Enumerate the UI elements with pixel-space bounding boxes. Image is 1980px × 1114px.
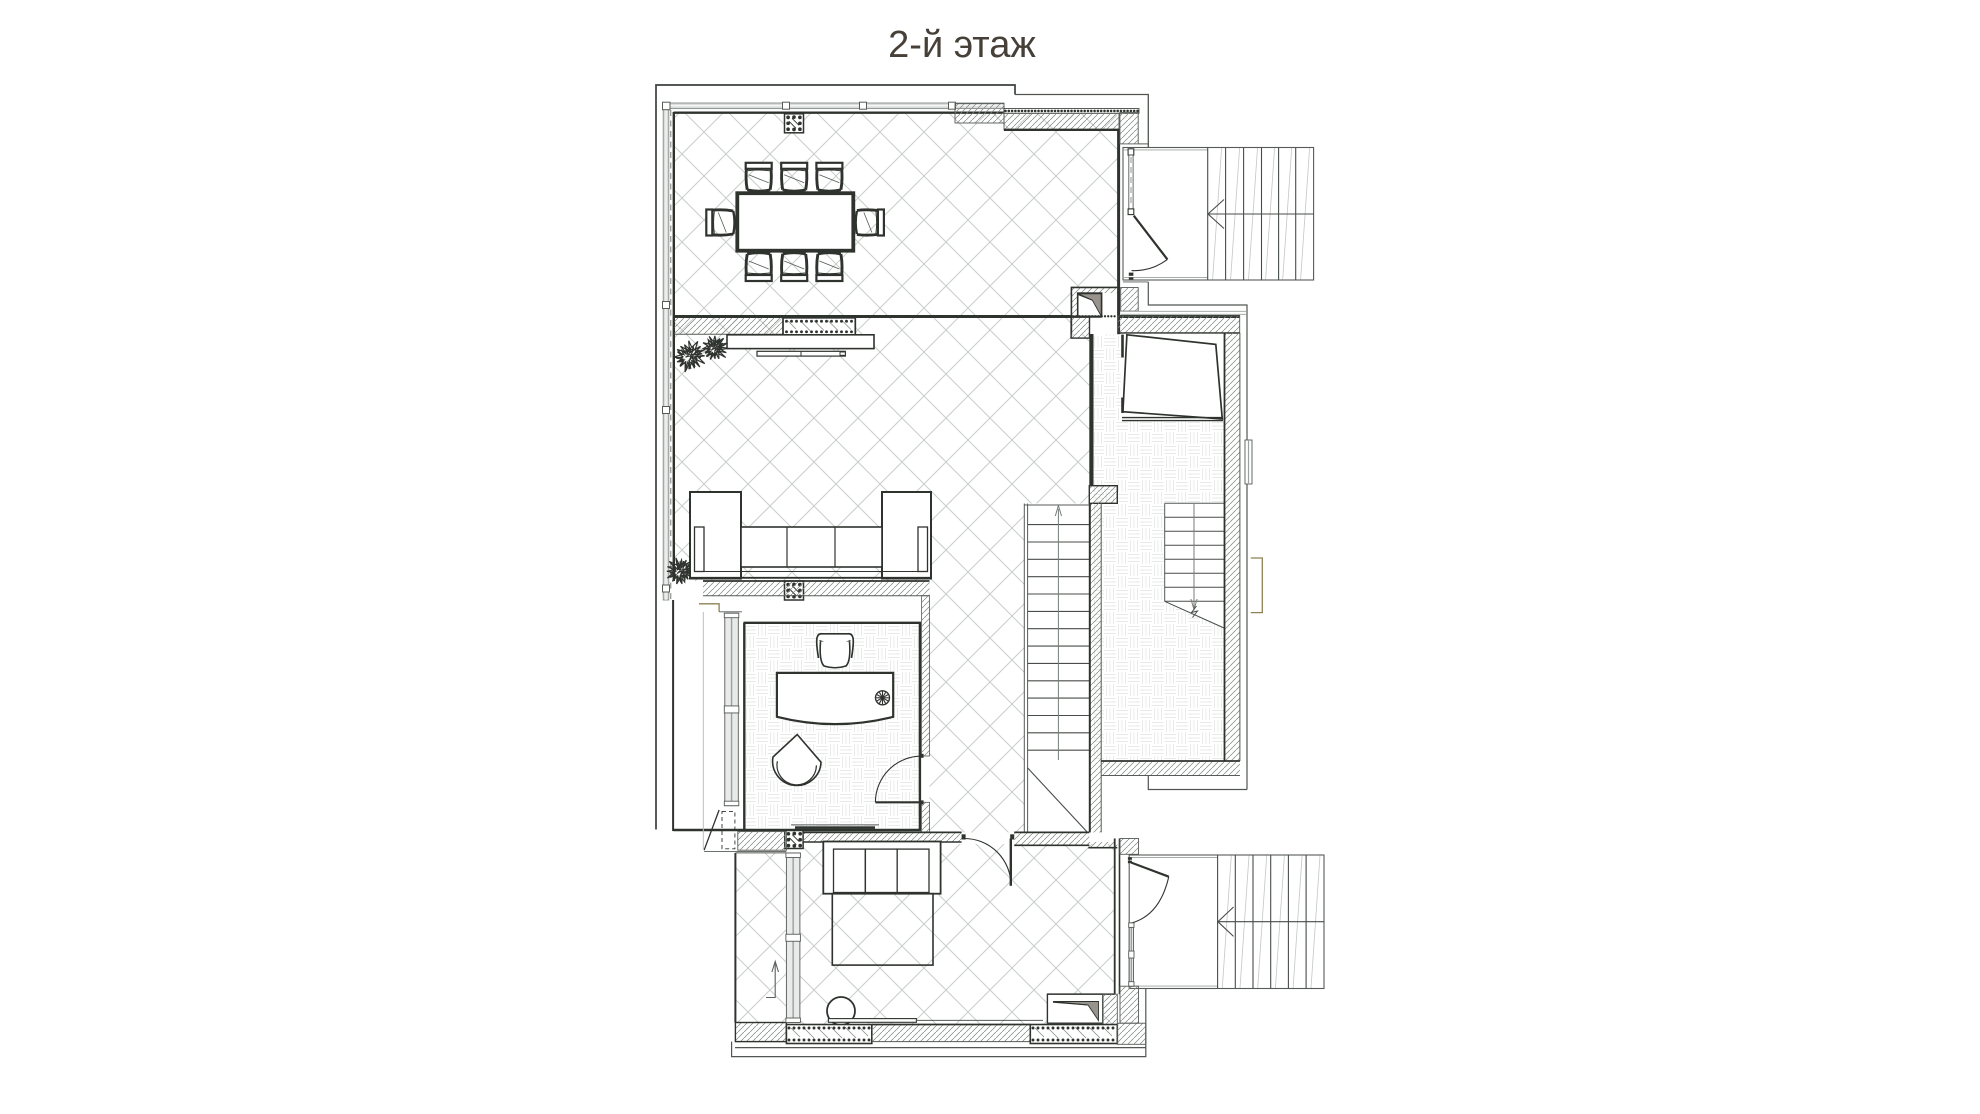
svg-text:2-й этаж: 2-й этаж [888,24,1036,66]
